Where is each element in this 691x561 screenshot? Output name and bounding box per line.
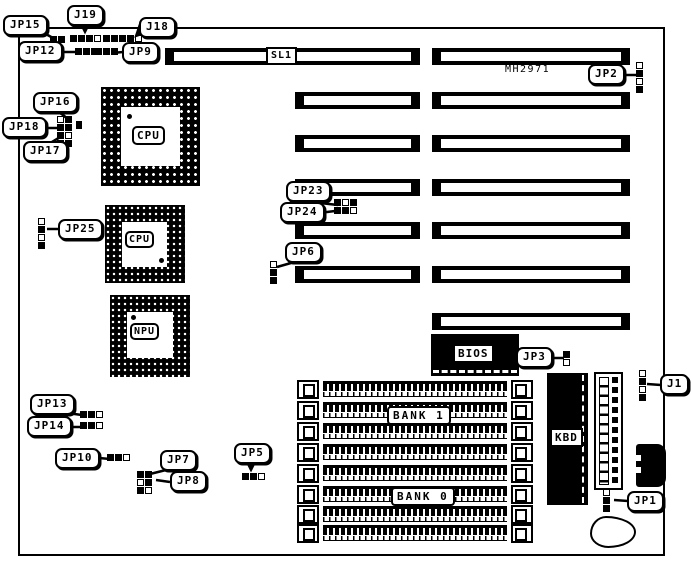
callout-jp5: JP5: [234, 443, 271, 464]
callout-jp15: JP15: [3, 15, 48, 36]
callout-jp23: JP23: [286, 181, 331, 202]
isa-slot: [432, 179, 630, 196]
callout-j18: J18: [139, 17, 176, 38]
simm-socket-1: [297, 380, 533, 399]
pin1-dot: [159, 258, 164, 263]
callout-jp24: JP24: [280, 202, 325, 223]
isa-slot: [432, 222, 630, 239]
callout-jp7: JP7: [160, 450, 197, 471]
cpu-label: CPU: [132, 126, 165, 145]
jumper-jp14: [80, 422, 103, 429]
isa-slot: [432, 313, 630, 330]
pin1-dot: [131, 315, 136, 320]
jumper-jp10: [107, 454, 130, 461]
jumper-jp9: [95, 48, 118, 55]
jumper-jp7-jp8: [137, 471, 152, 494]
jumper-jp2: [636, 62, 643, 93]
npu-socket: NPU: [110, 295, 190, 377]
callout-jp14: JP14: [27, 416, 72, 437]
simm-socket-4: [297, 443, 533, 462]
cpu-alt-label: CPU: [125, 231, 154, 248]
kbd-label: KBD: [550, 428, 583, 447]
jumper-j1: [639, 370, 646, 401]
motherboard-jumper-diagram: SL1 MH2971 CPU CPU NPU BIOS KBD: [0, 0, 691, 561]
cpu-socket: CPU: [101, 87, 200, 186]
npu-label: NPU: [130, 323, 159, 340]
bios-label: BIOS: [453, 344, 494, 363]
slot-sl1-label: SL1: [266, 47, 297, 65]
isa-slot: [432, 266, 630, 283]
power-pin-dashes: [612, 377, 618, 485]
isa-slot: [432, 48, 630, 65]
bank0-label: BANK 0: [391, 487, 455, 506]
callout-jp13: JP13: [30, 394, 75, 415]
isa-slot: [295, 92, 420, 109]
callout-jp16: JP16: [33, 92, 78, 113]
callout-jp17: JP17: [23, 141, 68, 162]
keyboard-din-connector: [636, 444, 666, 487]
isa-slot: [295, 135, 420, 152]
jumper-j19: [70, 35, 101, 42]
jumper-jp5: [242, 473, 265, 480]
simm-socket-7: [297, 505, 533, 524]
callout-jp2: JP2: [588, 64, 625, 85]
cpu-alt-socket: CPU: [105, 205, 185, 283]
jumper-cap: [76, 121, 82, 129]
power-pin-column: [599, 377, 609, 485]
isa-slot: [295, 222, 420, 239]
callout-jp18: JP18: [2, 117, 47, 138]
jumper-jp6: [270, 261, 277, 284]
jumper-jp23-jp24: [334, 199, 357, 214]
bios-socket-dashes: [433, 370, 517, 373]
callout-jp9: JP9: [122, 42, 159, 63]
callout-j1: J1: [660, 374, 689, 395]
callout-jp10: JP10: [55, 448, 100, 469]
board-model-text: MH2971: [505, 64, 550, 75]
isa-slot: [432, 135, 630, 152]
callout-jp6: JP6: [285, 242, 322, 263]
callout-jp25: JP25: [58, 219, 103, 240]
jumper-jp1: [603, 489, 610, 512]
callout-jp1: JP1: [627, 491, 664, 512]
jumper-jp13: [80, 411, 103, 418]
pin1-dot: [127, 114, 132, 119]
jumper-j18: [103, 35, 142, 42]
bank1-label: BANK 1: [387, 406, 451, 425]
callout-jp12: JP12: [18, 41, 63, 62]
isa-slot: [295, 266, 420, 283]
callout-j19: J19: [67, 5, 104, 26]
isa-slot: [432, 92, 630, 109]
power-connector: [594, 372, 623, 490]
callout-jp8: JP8: [170, 471, 207, 492]
jumper-jp3: [563, 351, 570, 366]
callout-jp3: JP3: [516, 347, 553, 368]
simm-socket-8: [297, 524, 533, 543]
simm-socket-5: [297, 464, 533, 483]
jumper-jp25: [38, 218, 45, 249]
